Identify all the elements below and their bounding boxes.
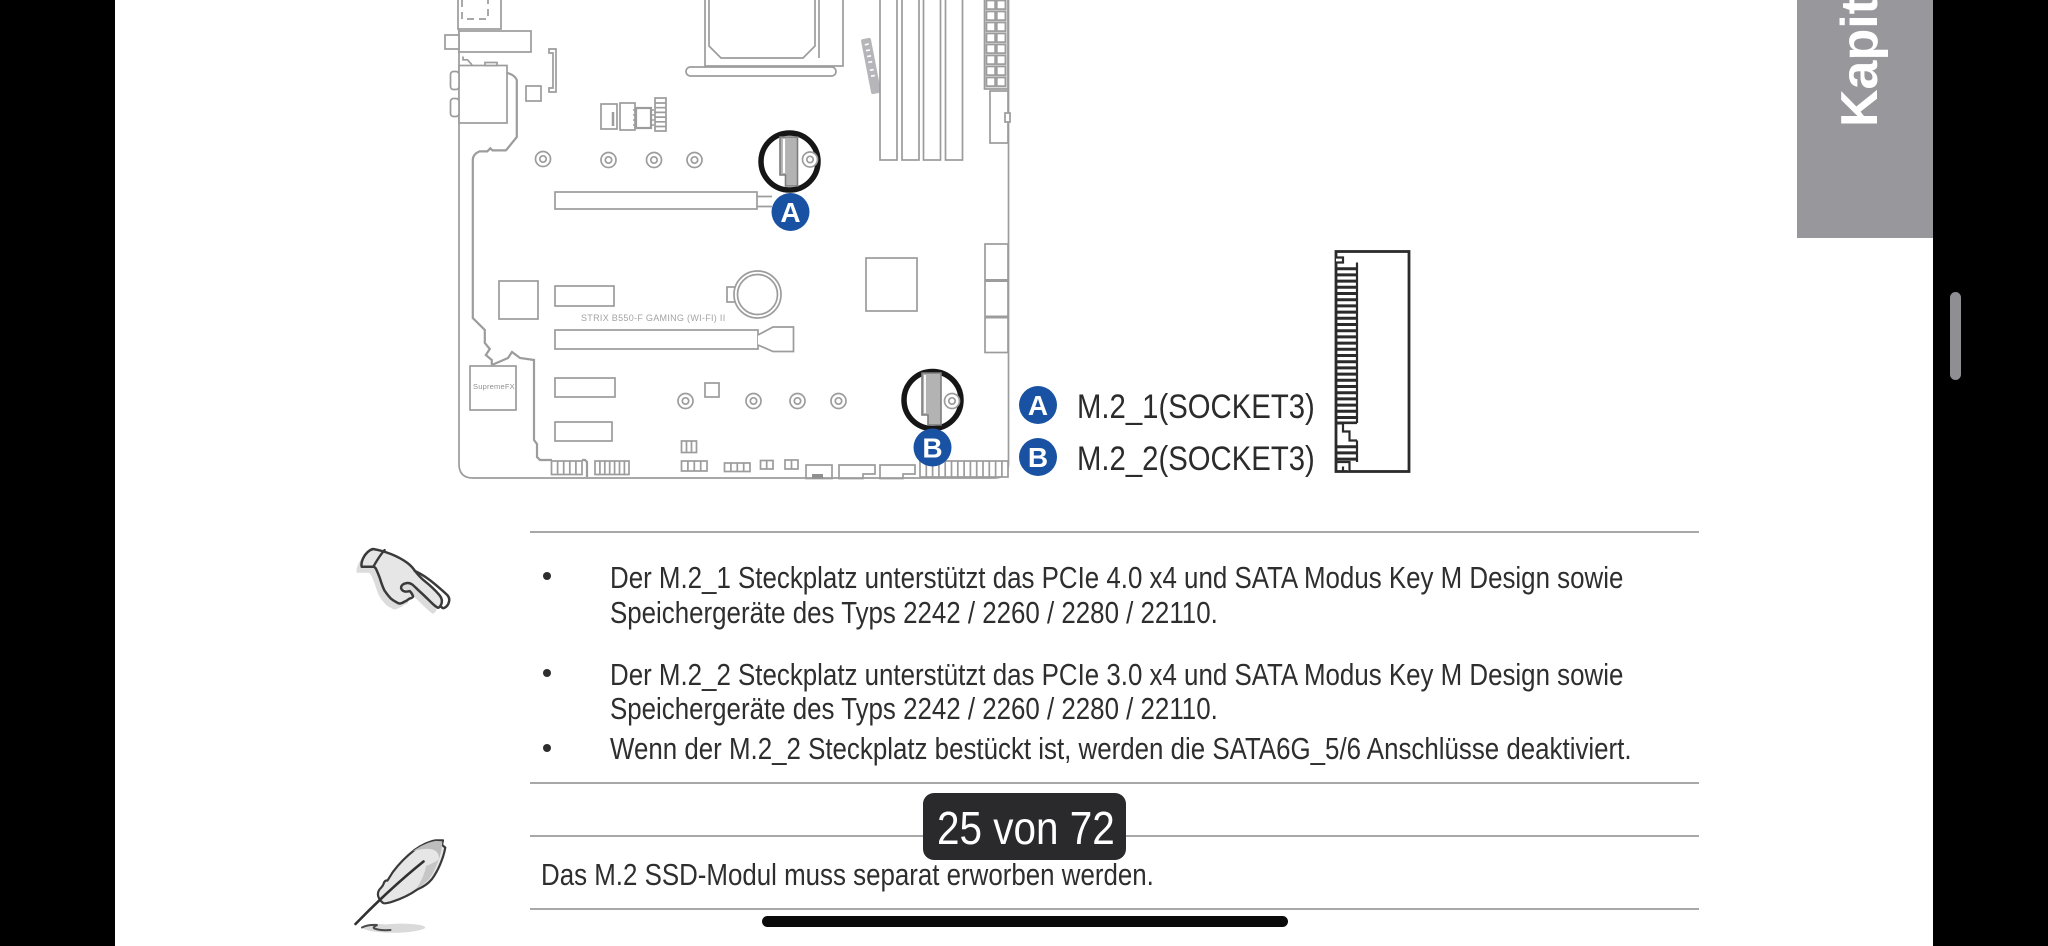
svg-text:Kapitel 2: Kapitel 2 xyxy=(1831,0,1889,127)
svg-text:A: A xyxy=(780,197,800,228)
svg-text:STRIX B550-F GAMING (WI-FI) II: STRIX B550-F GAMING (WI-FI) II xyxy=(581,313,726,323)
svg-text:SupremeFX: SupremeFX xyxy=(473,382,515,391)
svg-text:B: B xyxy=(922,433,942,464)
